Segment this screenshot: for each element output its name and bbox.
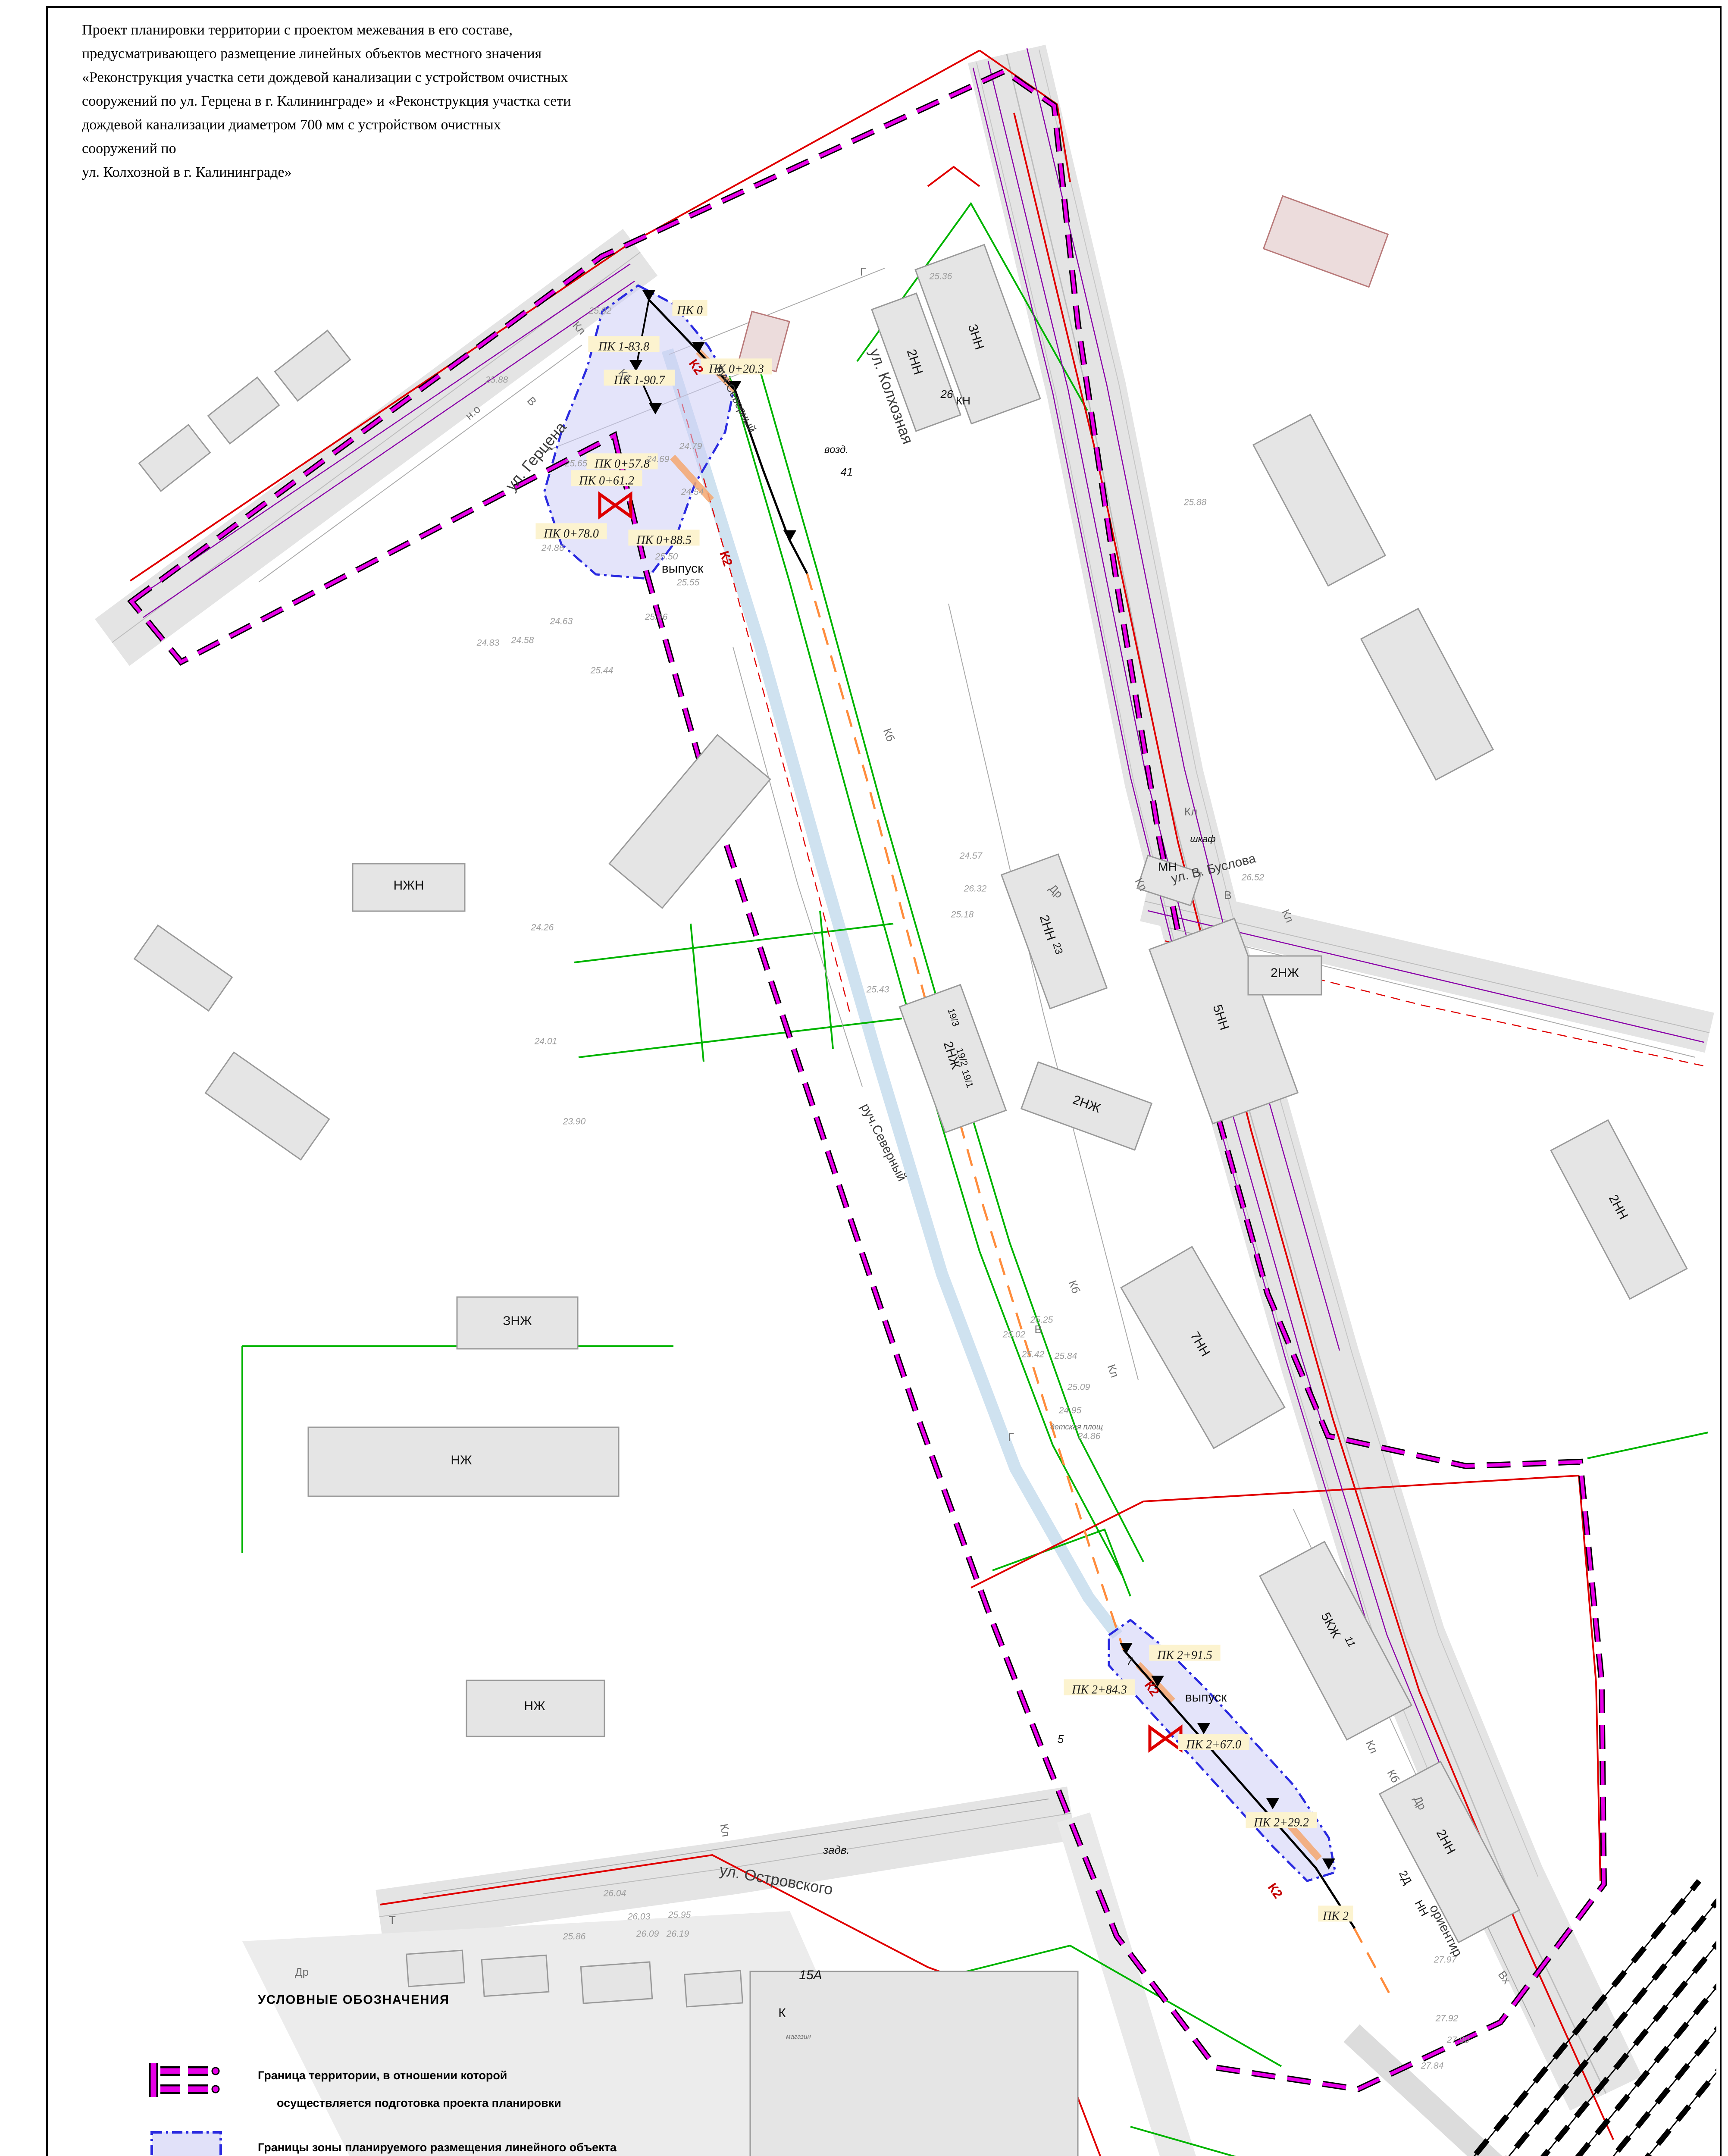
map-label: Др: [295, 1965, 309, 1978]
pk-label: ПК 2+91.5: [1157, 1648, 1212, 1662]
boundary-legend-symbol: [147, 2059, 229, 2102]
map-label: КН: [956, 394, 970, 407]
map-label: выпуск: [1185, 1690, 1227, 1705]
map-label: 24.86: [541, 543, 564, 553]
map-label: 15А: [799, 1968, 822, 1982]
legend-header: УСЛОВНЫЕ ОБОЗНАЧЕНИЯ: [258, 1993, 450, 2007]
building: [1253, 414, 1385, 586]
pk-label: ПК 2+29.2: [1253, 1816, 1309, 1829]
map-label: Кл: [1184, 805, 1197, 818]
map-label: 25.18: [951, 910, 974, 920]
building: [482, 1955, 549, 1996]
legend-boundary-line2: осуществляется подготовка проекта планир…: [277, 2096, 561, 2110]
map-label: 24.63: [550, 617, 573, 627]
map-label: В: [525, 394, 539, 408]
building: [275, 330, 350, 401]
map-label: 2НЖ: [1271, 966, 1299, 980]
building: [685, 1971, 743, 2007]
map-label: 24.58: [511, 636, 534, 646]
map-label: 27.90: [1446, 2035, 1470, 2045]
pk-label: ПК 0+61.2: [579, 474, 634, 487]
map-label: Г: [860, 265, 866, 278]
map-label: возд.: [824, 444, 848, 455]
map-label: НЖН: [393, 878, 424, 893]
map-label: выпуск: [662, 561, 704, 576]
map-label: 25.42: [1021, 1350, 1045, 1360]
map-label: НН: [1412, 1898, 1431, 1918]
map-label: 25.65: [564, 459, 588, 469]
pk-label: ПК 1-83.8: [598, 340, 649, 353]
building: [1264, 196, 1388, 287]
map-label: 25.36: [929, 272, 952, 282]
map-label: 24.26: [531, 923, 554, 933]
map-label: К: [778, 2006, 786, 2020]
map-label: Кл: [1105, 1363, 1122, 1379]
map-label: 25.46: [645, 612, 668, 622]
territory-boundary: [131, 71, 1604, 2089]
map-label: 24.01: [534, 1037, 557, 1047]
map-label: 25.55: [676, 578, 700, 588]
map-label: 25.92: [589, 306, 612, 316]
building: [407, 1950, 465, 1987]
map-label: Кб: [1066, 1279, 1083, 1295]
map-label: шкаф: [1190, 834, 1215, 844]
map-label: 24.79: [679, 442, 702, 451]
map-label: 26.03: [627, 1912, 651, 1922]
pk-label: ПК 2+84.3: [1071, 1683, 1127, 1696]
pk-label: ПК 0+78.0: [543, 527, 599, 540]
zone-legend-symbol: [147, 2128, 229, 2156]
map-label: 27.97: [1434, 1955, 1457, 1965]
building: [135, 925, 232, 1011]
building: [1361, 608, 1493, 780]
pk-label: ПК 0: [676, 304, 703, 317]
map-label: 26.52: [1241, 873, 1265, 883]
map-label: 25.43: [866, 985, 889, 995]
map-label: 24.57: [959, 851, 983, 861]
map-label: 25.50: [655, 552, 678, 562]
map-label: В: [1224, 889, 1231, 902]
map-label: 24.86: [1077, 1432, 1101, 1442]
pk-label: ПК 2+67.0: [1186, 1738, 1241, 1751]
map-label: 24.69: [646, 454, 670, 464]
map-label: 24.83: [476, 638, 500, 648]
map-label: 25.88: [1183, 498, 1207, 508]
map-label: Г: [1008, 1431, 1014, 1444]
legend-zone-label: Границы зоны планируемого размещения лин…: [258, 2141, 617, 2154]
map-label: 25.02: [1002, 1330, 1026, 1340]
map-label: задв.: [823, 1843, 849, 1856]
map-label: 26.09: [636, 1929, 659, 1939]
building: [139, 425, 210, 491]
map-label: 25.88: [485, 375, 508, 385]
map-label: МН: [1158, 860, 1177, 873]
map-label: 2Д: [1396, 1868, 1415, 1887]
pk-label: ПК 0+88.5: [636, 533, 692, 547]
map-label: 26: [940, 388, 953, 401]
map-label: Т: [389, 1914, 396, 1927]
building: [208, 377, 279, 444]
building: [581, 1962, 652, 2003]
map-label: Кб: [1385, 1767, 1402, 1785]
map-canvas: ПК 0ПК 0+20.3ПК 1-83.8ПК 1-90.7ПК 0+57.8…: [0, 0, 1728, 2156]
map-label: детская площ: [1050, 1423, 1103, 1431]
map-label: 25.44: [590, 666, 614, 676]
map-label: 23.90: [563, 1117, 586, 1127]
map-label: 25.84: [1054, 1351, 1077, 1361]
map-label: 25.25: [1030, 1315, 1053, 1325]
map-label: 26.19: [666, 1929, 689, 1939]
map-label: 7: [1127, 1655, 1133, 1668]
building: [205, 1052, 329, 1159]
map-label: К2: [1265, 1880, 1285, 1901]
map-label: Кб: [881, 727, 897, 743]
map-label: ЗНЖ: [503, 1314, 532, 1328]
drawing-sheet: Проект планировки территории с проектом …: [0, 0, 1728, 2156]
map-label: НЖ: [451, 1453, 472, 1467]
map-label: 27.92: [1435, 2014, 1459, 2024]
map-label: НЖ: [524, 1699, 545, 1713]
pk-label: ПК 0+57.8: [594, 457, 650, 470]
map-label: 27.84: [1421, 2061, 1444, 2071]
building: [609, 735, 770, 908]
map-label: 26.32: [964, 884, 987, 894]
map-label: 24.95: [1058, 1406, 1082, 1416]
map-label: 41: [841, 465, 853, 478]
map-label: 24.54: [681, 487, 704, 497]
map-label: 5: [1058, 1733, 1064, 1745]
building: [750, 1971, 1078, 2156]
legend-boundary-line1: Граница территории, в отношении которой: [258, 2069, 507, 2082]
pk-label: ПК 2: [1322, 1909, 1349, 1923]
map-label: 26.04: [603, 1889, 626, 1899]
map-label: Кл: [1363, 1738, 1381, 1755]
map-label: 25.95: [668, 1910, 691, 1920]
map-label: Кл: [718, 1823, 733, 1838]
picket-triangle: [783, 530, 796, 542]
map-label: 25.09: [1067, 1382, 1090, 1392]
map-label: 25.86: [563, 1932, 586, 1942]
map-label: магазин: [786, 2033, 811, 2040]
